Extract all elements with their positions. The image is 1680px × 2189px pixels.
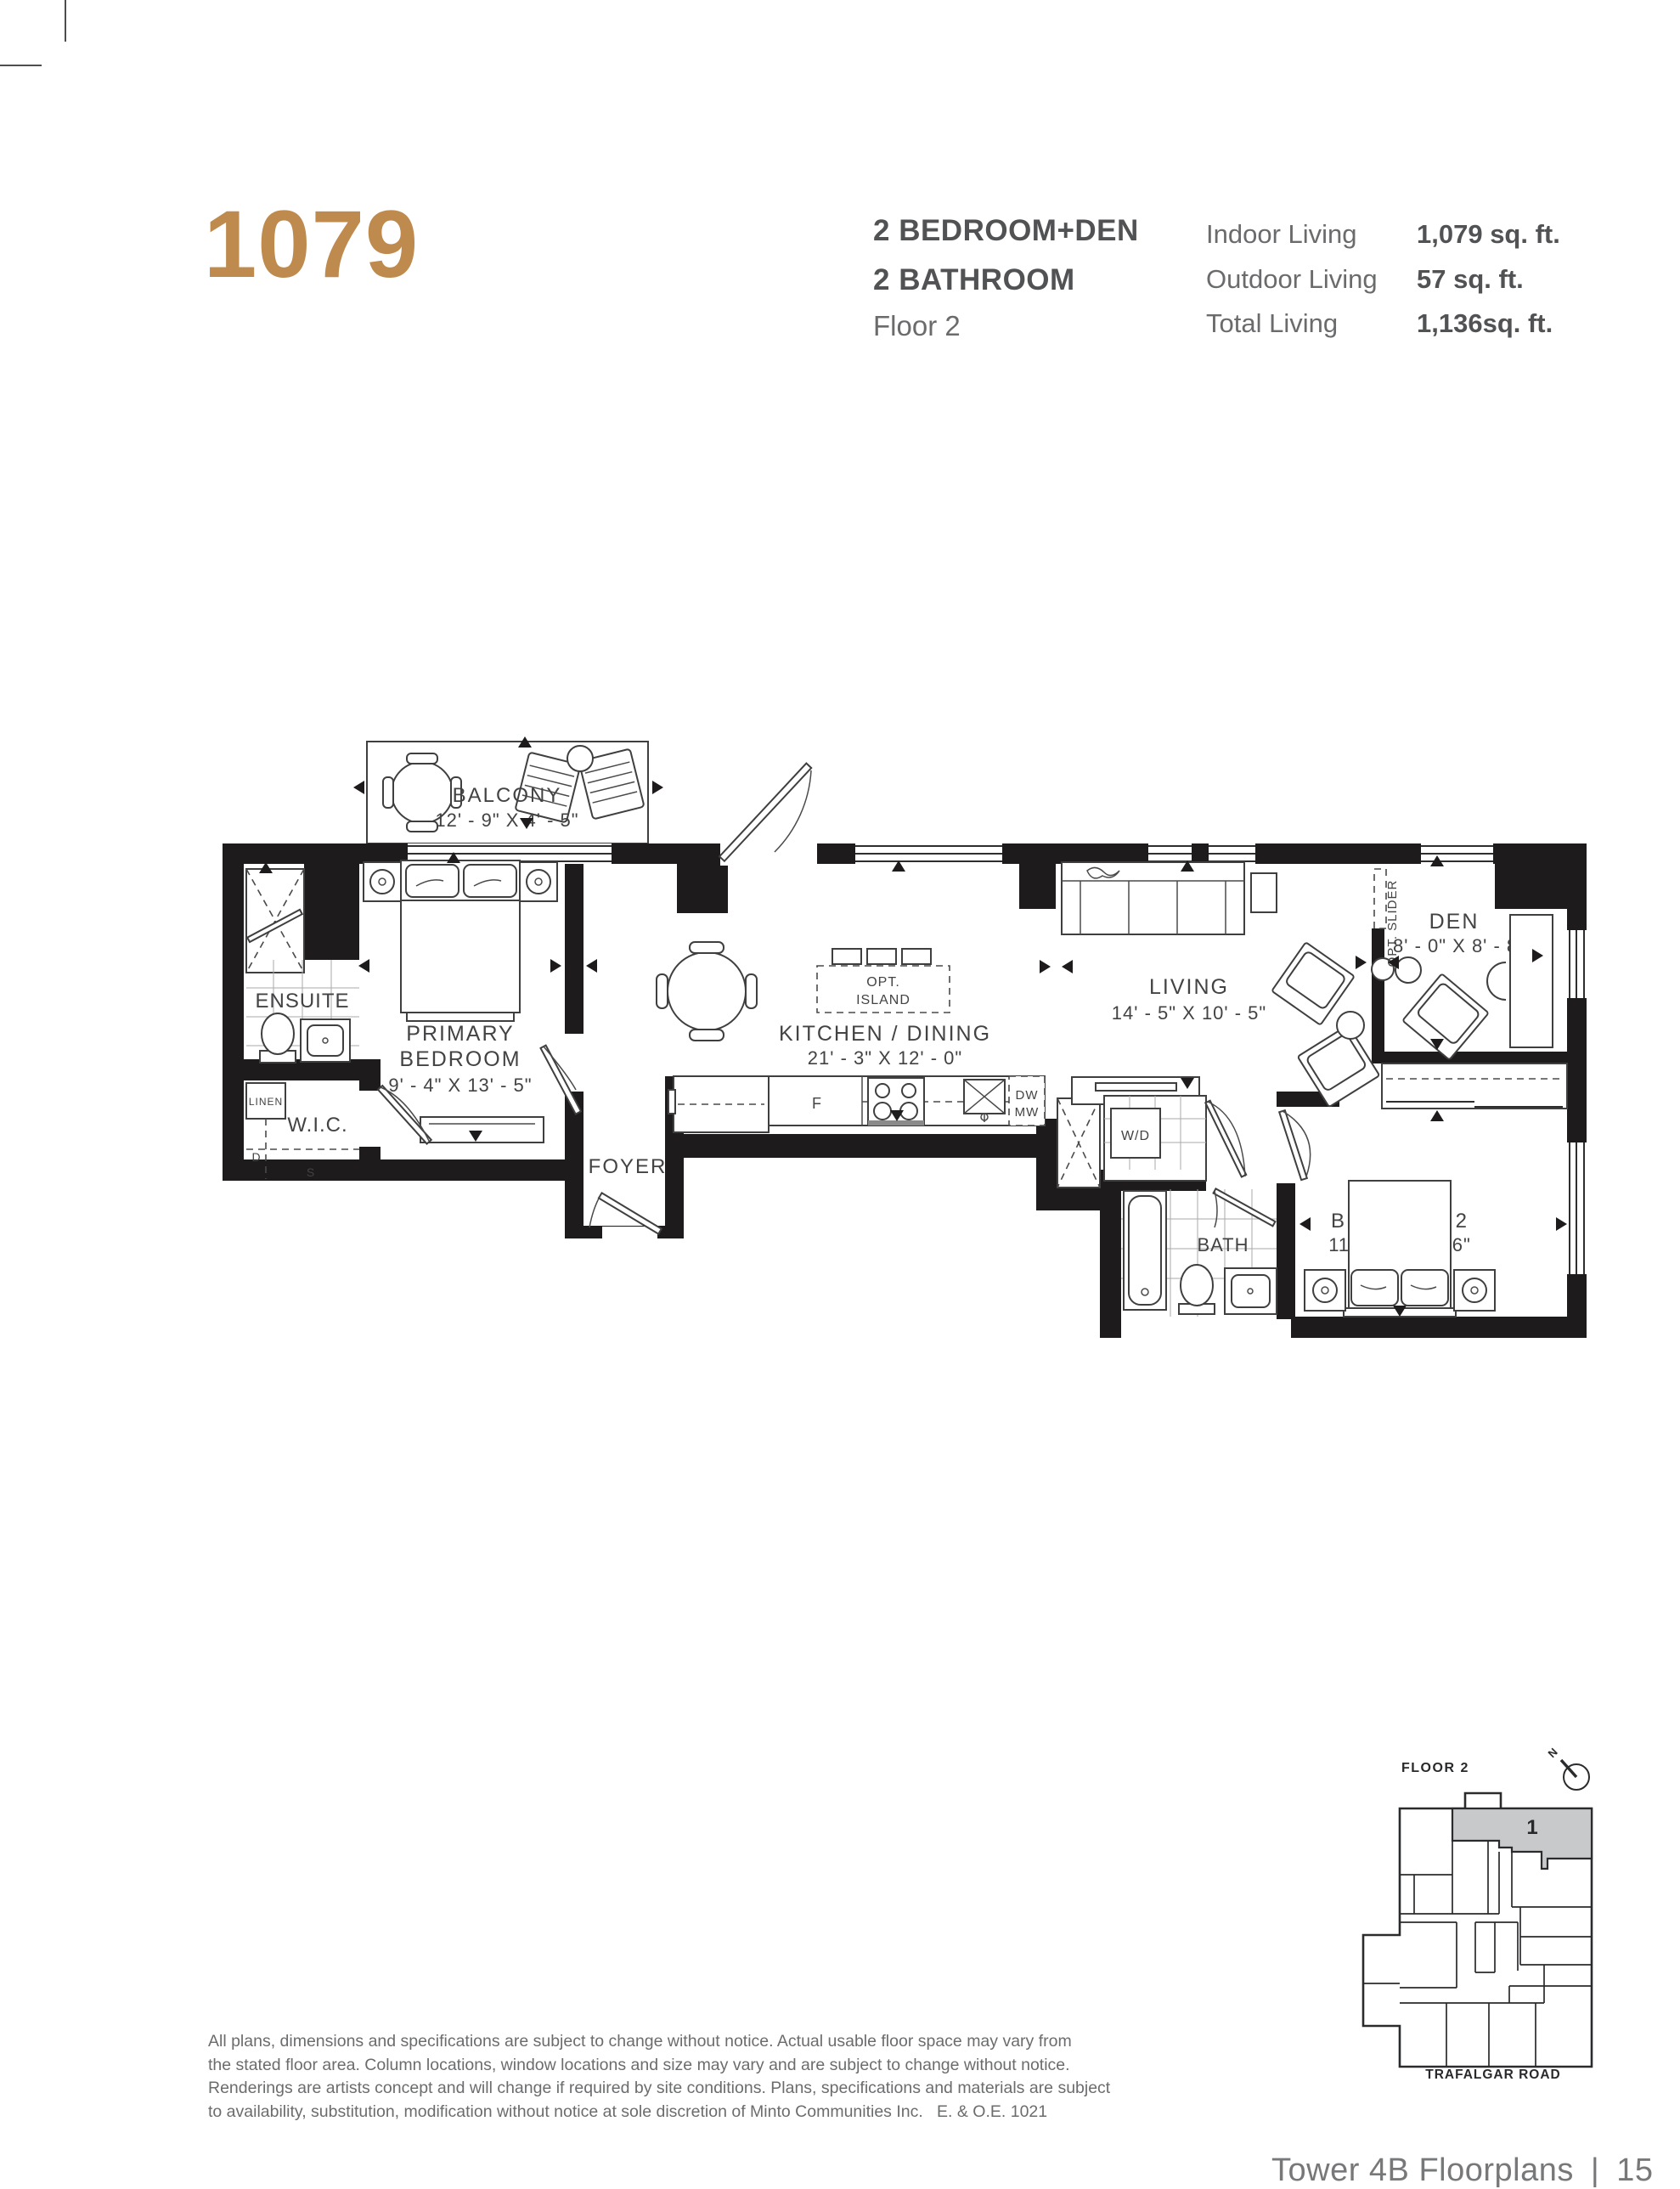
window	[1209, 843, 1255, 864]
bath-label: BATH	[1197, 1234, 1249, 1255]
bath-door	[1214, 1188, 1276, 1227]
side-table	[1251, 873, 1277, 912]
keyplan-title: FLOOR 2	[1401, 1761, 1469, 1775]
primary-bedroom-door	[540, 1046, 580, 1114]
window	[1148, 843, 1192, 864]
disclaimer-line: to availability, substitution, modificat…	[208, 2101, 1110, 2124]
window	[855, 843, 1002, 864]
crop-mark-vertical	[65, 0, 66, 42]
keyplan: FLOOR 2 N 1 TRAFALGAR ROAD	[1359, 1733, 1648, 2132]
unit-type-line1: 2 BEDROOM+DEN	[873, 214, 1139, 248]
bathroom: BATH	[1121, 1188, 1277, 1317]
dw-label: DW	[1016, 1088, 1039, 1103]
den-chair	[1402, 973, 1488, 1059]
foyer-closet	[668, 1076, 769, 1132]
utility-shaft	[1057, 1098, 1100, 1188]
balcony-label: BALCONY	[453, 784, 562, 807]
sofa	[1062, 862, 1244, 934]
disclaimer-line: All plans, dimensions and specifications…	[208, 2030, 1110, 2054]
ensuite-label: ENSUITE	[255, 990, 349, 1013]
mw-label: MW	[1015, 1105, 1040, 1120]
opt-island-label1: OPT.	[866, 975, 900, 990]
window-bedroom2-side	[1567, 1142, 1587, 1274]
stat-value-outdoor: 57 sq. ft.	[1417, 264, 1524, 295]
floor-label: Floor 2	[873, 310, 961, 342]
living-label: LIVING	[1149, 975, 1229, 999]
dryer-label: D	[251, 1150, 261, 1164]
north-compass: N	[1546, 1746, 1589, 1790]
bedroom2-door	[1279, 1110, 1310, 1180]
wd-label: W/D	[1121, 1129, 1150, 1143]
stat-label-outdoor: Outdoor Living	[1206, 264, 1378, 295]
linen-label: LINEN	[249, 1096, 283, 1108]
balcony-dims: 12' - 9" X 4' - 5"	[435, 810, 578, 831]
laundry-door	[1205, 1101, 1246, 1177]
shelf-label: S	[307, 1165, 315, 1179]
opt-island-label2: ISLAND	[856, 993, 910, 1007]
dishwasher-microwave: DW MW	[1009, 1076, 1045, 1126]
nightstand	[1454, 1270, 1495, 1311]
side-table-round	[1337, 1012, 1364, 1039]
keyplan-building: 1	[1363, 1793, 1592, 2067]
footer-separator: |	[1591, 2152, 1599, 2188]
stat-value-total: 1,136sq. ft.	[1417, 308, 1553, 339]
wic-label: W.I.C.	[287, 1114, 347, 1137]
keyplan-street: TRAFALGAR ROAD	[1425, 2068, 1561, 2082]
window	[1421, 843, 1493, 864]
bedroom2-closet	[1382, 1063, 1567, 1109]
bathtub	[1124, 1191, 1166, 1310]
footer-page-number: 15	[1616, 2152, 1653, 2188]
nightstand	[520, 862, 557, 901]
unit-type-line2: 2 BATHROOM	[873, 263, 1075, 297]
kitchen-dining-dims: 21' - 3" X 12' - 0"	[808, 1047, 962, 1069]
north-label: N	[1546, 1746, 1560, 1760]
shower	[246, 869, 304, 973]
living: LIVING 14' - 5" X 10' - 5"	[1062, 862, 1394, 1107]
primary-bedroom-label2: BEDROOM	[399, 1047, 521, 1071]
stat-value-indoor: 1,079 sq. ft.	[1417, 219, 1560, 250]
optional-island: OPT. ISLAND	[817, 949, 950, 1013]
bath-sink	[1225, 1268, 1277, 1314]
floorplan-drawing: BALCONY 12' - 9" X 4' - 5"	[212, 718, 1588, 1374]
dresser	[420, 1117, 544, 1142]
footer-section-label: Tower 4B Floorplans	[1271, 2152, 1574, 2188]
disclaimer-line: the stated floor area. Column locations,…	[208, 2054, 1110, 2078]
disclaimer-line: Renderings are artists concept and will …	[208, 2077, 1110, 2101]
bed	[401, 860, 520, 1021]
den-label: DEN	[1429, 910, 1480, 934]
den-side-table	[1395, 957, 1421, 983]
disclaimer: All plans, dimensions and specifications…	[208, 2030, 1110, 2124]
dining-table	[657, 942, 757, 1041]
den-dims: 8' - 0" X 8' - 8"	[1393, 935, 1525, 956]
accent-chair	[1271, 942, 1354, 1024]
page-footer: Tower 4B Floorplans|15	[1271, 2152, 1654, 2189]
unit-number: 1079	[204, 197, 419, 292]
balcony: BALCONY 12' - 9" X 4' - 5"	[367, 742, 648, 843]
keyplan-unit-number: 1	[1526, 1816, 1537, 1839]
balcony-door	[719, 764, 817, 866]
stat-label-indoor: Indoor Living	[1206, 219, 1357, 250]
kitchen-dining-label: KITCHEN / DINING	[779, 1022, 991, 1046]
nightstand	[364, 862, 401, 901]
bath-toilet	[1179, 1265, 1215, 1314]
laundry-closet: W/D	[1104, 1096, 1246, 1181]
nightstand	[1305, 1270, 1345, 1311]
living-dims: 14' - 5" X 10' - 5"	[1112, 1002, 1266, 1024]
toilet	[260, 1013, 296, 1063]
window-den-side	[1567, 930, 1587, 998]
primary-bedroom-label1: PRIMARY	[406, 1022, 514, 1046]
fridge-label: F	[812, 1095, 822, 1112]
crop-mark-horizontal	[0, 65, 42, 66]
bed2	[1344, 1181, 1456, 1317]
foyer-label: FOYER	[589, 1155, 668, 1178]
floorplan-page: 1079 2 BEDROOM+DEN 2 BATHROOM Floor 2 In…	[0, 0, 1680, 2175]
ensuite-sink	[301, 1019, 350, 1062]
stat-label-total: Total Living	[1206, 308, 1338, 339]
primary-bedroom-dims: 9' - 4" X 13' - 5"	[388, 1075, 532, 1096]
